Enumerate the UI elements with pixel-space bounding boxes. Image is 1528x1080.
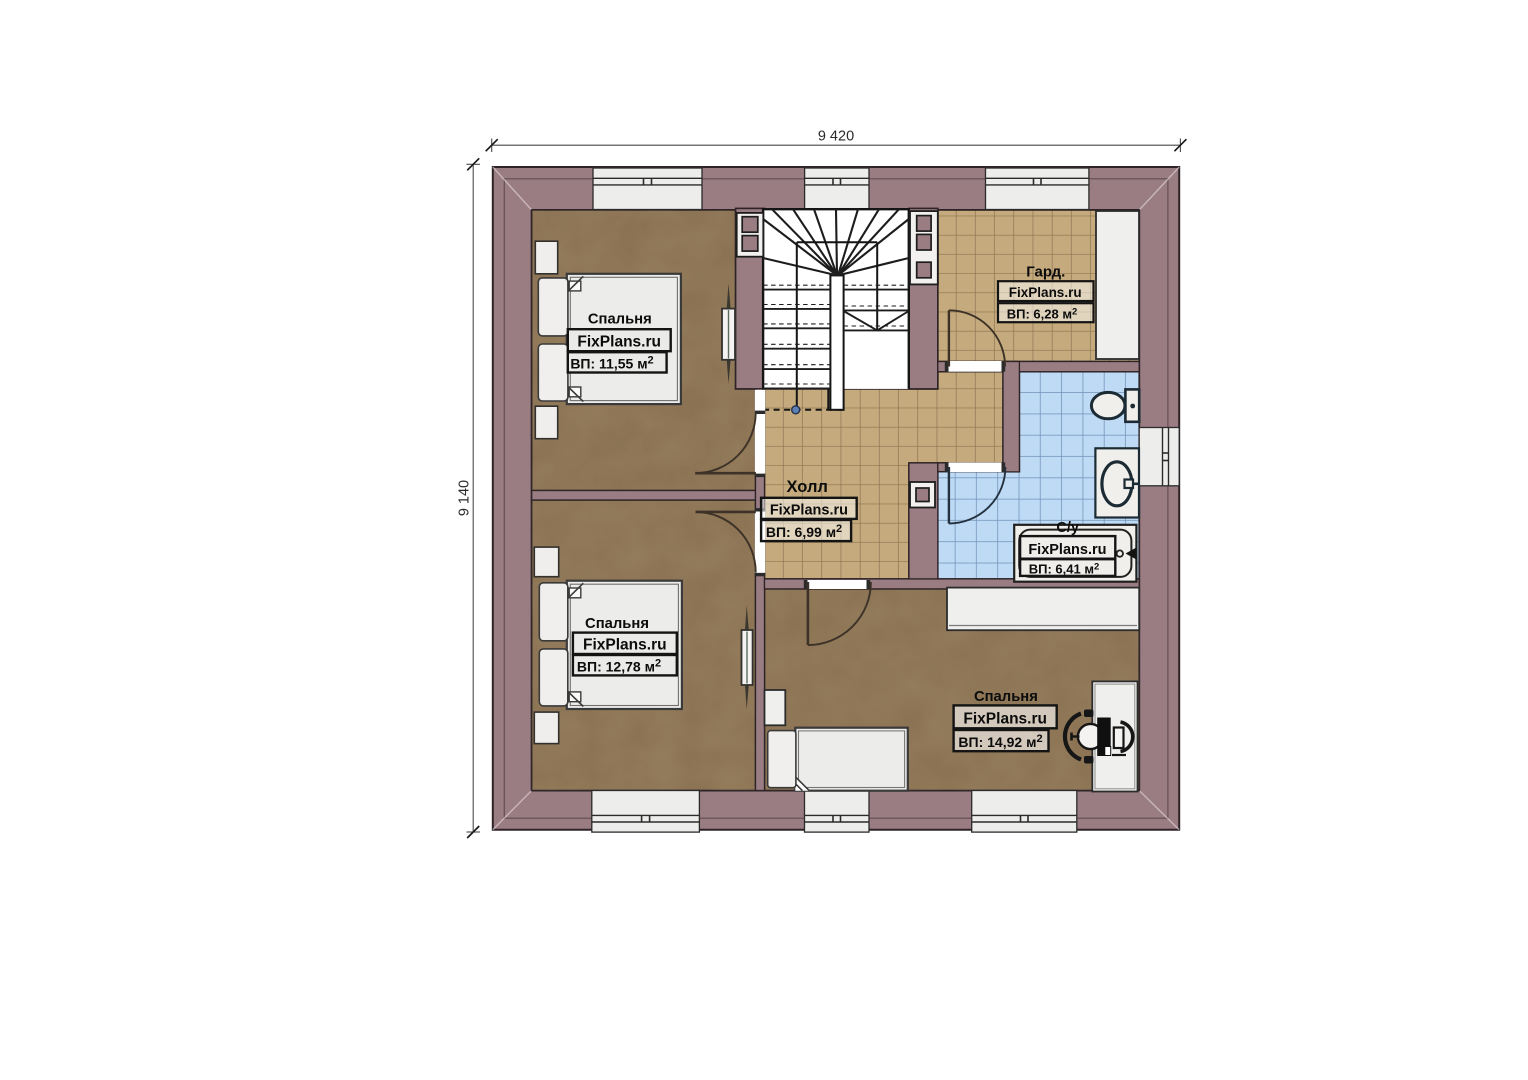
- svg-text:Гард.: Гард.: [1026, 264, 1065, 281]
- svg-text:Спальня: Спальня: [588, 311, 652, 327]
- svg-text:FixPlans.ru: FixPlans.ru: [770, 503, 848, 519]
- svg-text:Холл: Холл: [786, 478, 827, 496]
- svg-text:ВП: 6,99 м2: ВП: 6,99 м2: [766, 523, 842, 540]
- svg-text:FixPlans.ru: FixPlans.ru: [583, 637, 667, 654]
- svg-text:С/у: С/у: [1056, 520, 1079, 536]
- svg-text:Спальня: Спальня: [974, 689, 1038, 705]
- svg-text:9 140: 9 140: [457, 480, 473, 516]
- svg-text:FixPlans.ru: FixPlans.ru: [1009, 285, 1082, 300]
- svg-text:FixPlans.ru: FixPlans.ru: [577, 334, 661, 351]
- svg-text:ВП: 12,78 м2: ВП: 12,78 м2: [577, 658, 661, 675]
- svg-text:ВП: 14,92 м2: ВП: 14,92 м2: [958, 733, 1042, 750]
- svg-text:ВП: 6,41 м2: ВП: 6,41 м2: [1029, 561, 1100, 576]
- svg-text:9 420: 9 420: [818, 128, 854, 144]
- svg-text:FixPlans.ru: FixPlans.ru: [963, 710, 1047, 727]
- svg-text:ВП: 6,28 м2: ВП: 6,28 м2: [1007, 306, 1078, 321]
- svg-text:ВП: 11,55 м2: ВП: 11,55 м2: [570, 355, 653, 372]
- svg-text:FixPlans.ru: FixPlans.ru: [1028, 542, 1106, 558]
- svg-text:Спальня: Спальня: [585, 616, 649, 632]
